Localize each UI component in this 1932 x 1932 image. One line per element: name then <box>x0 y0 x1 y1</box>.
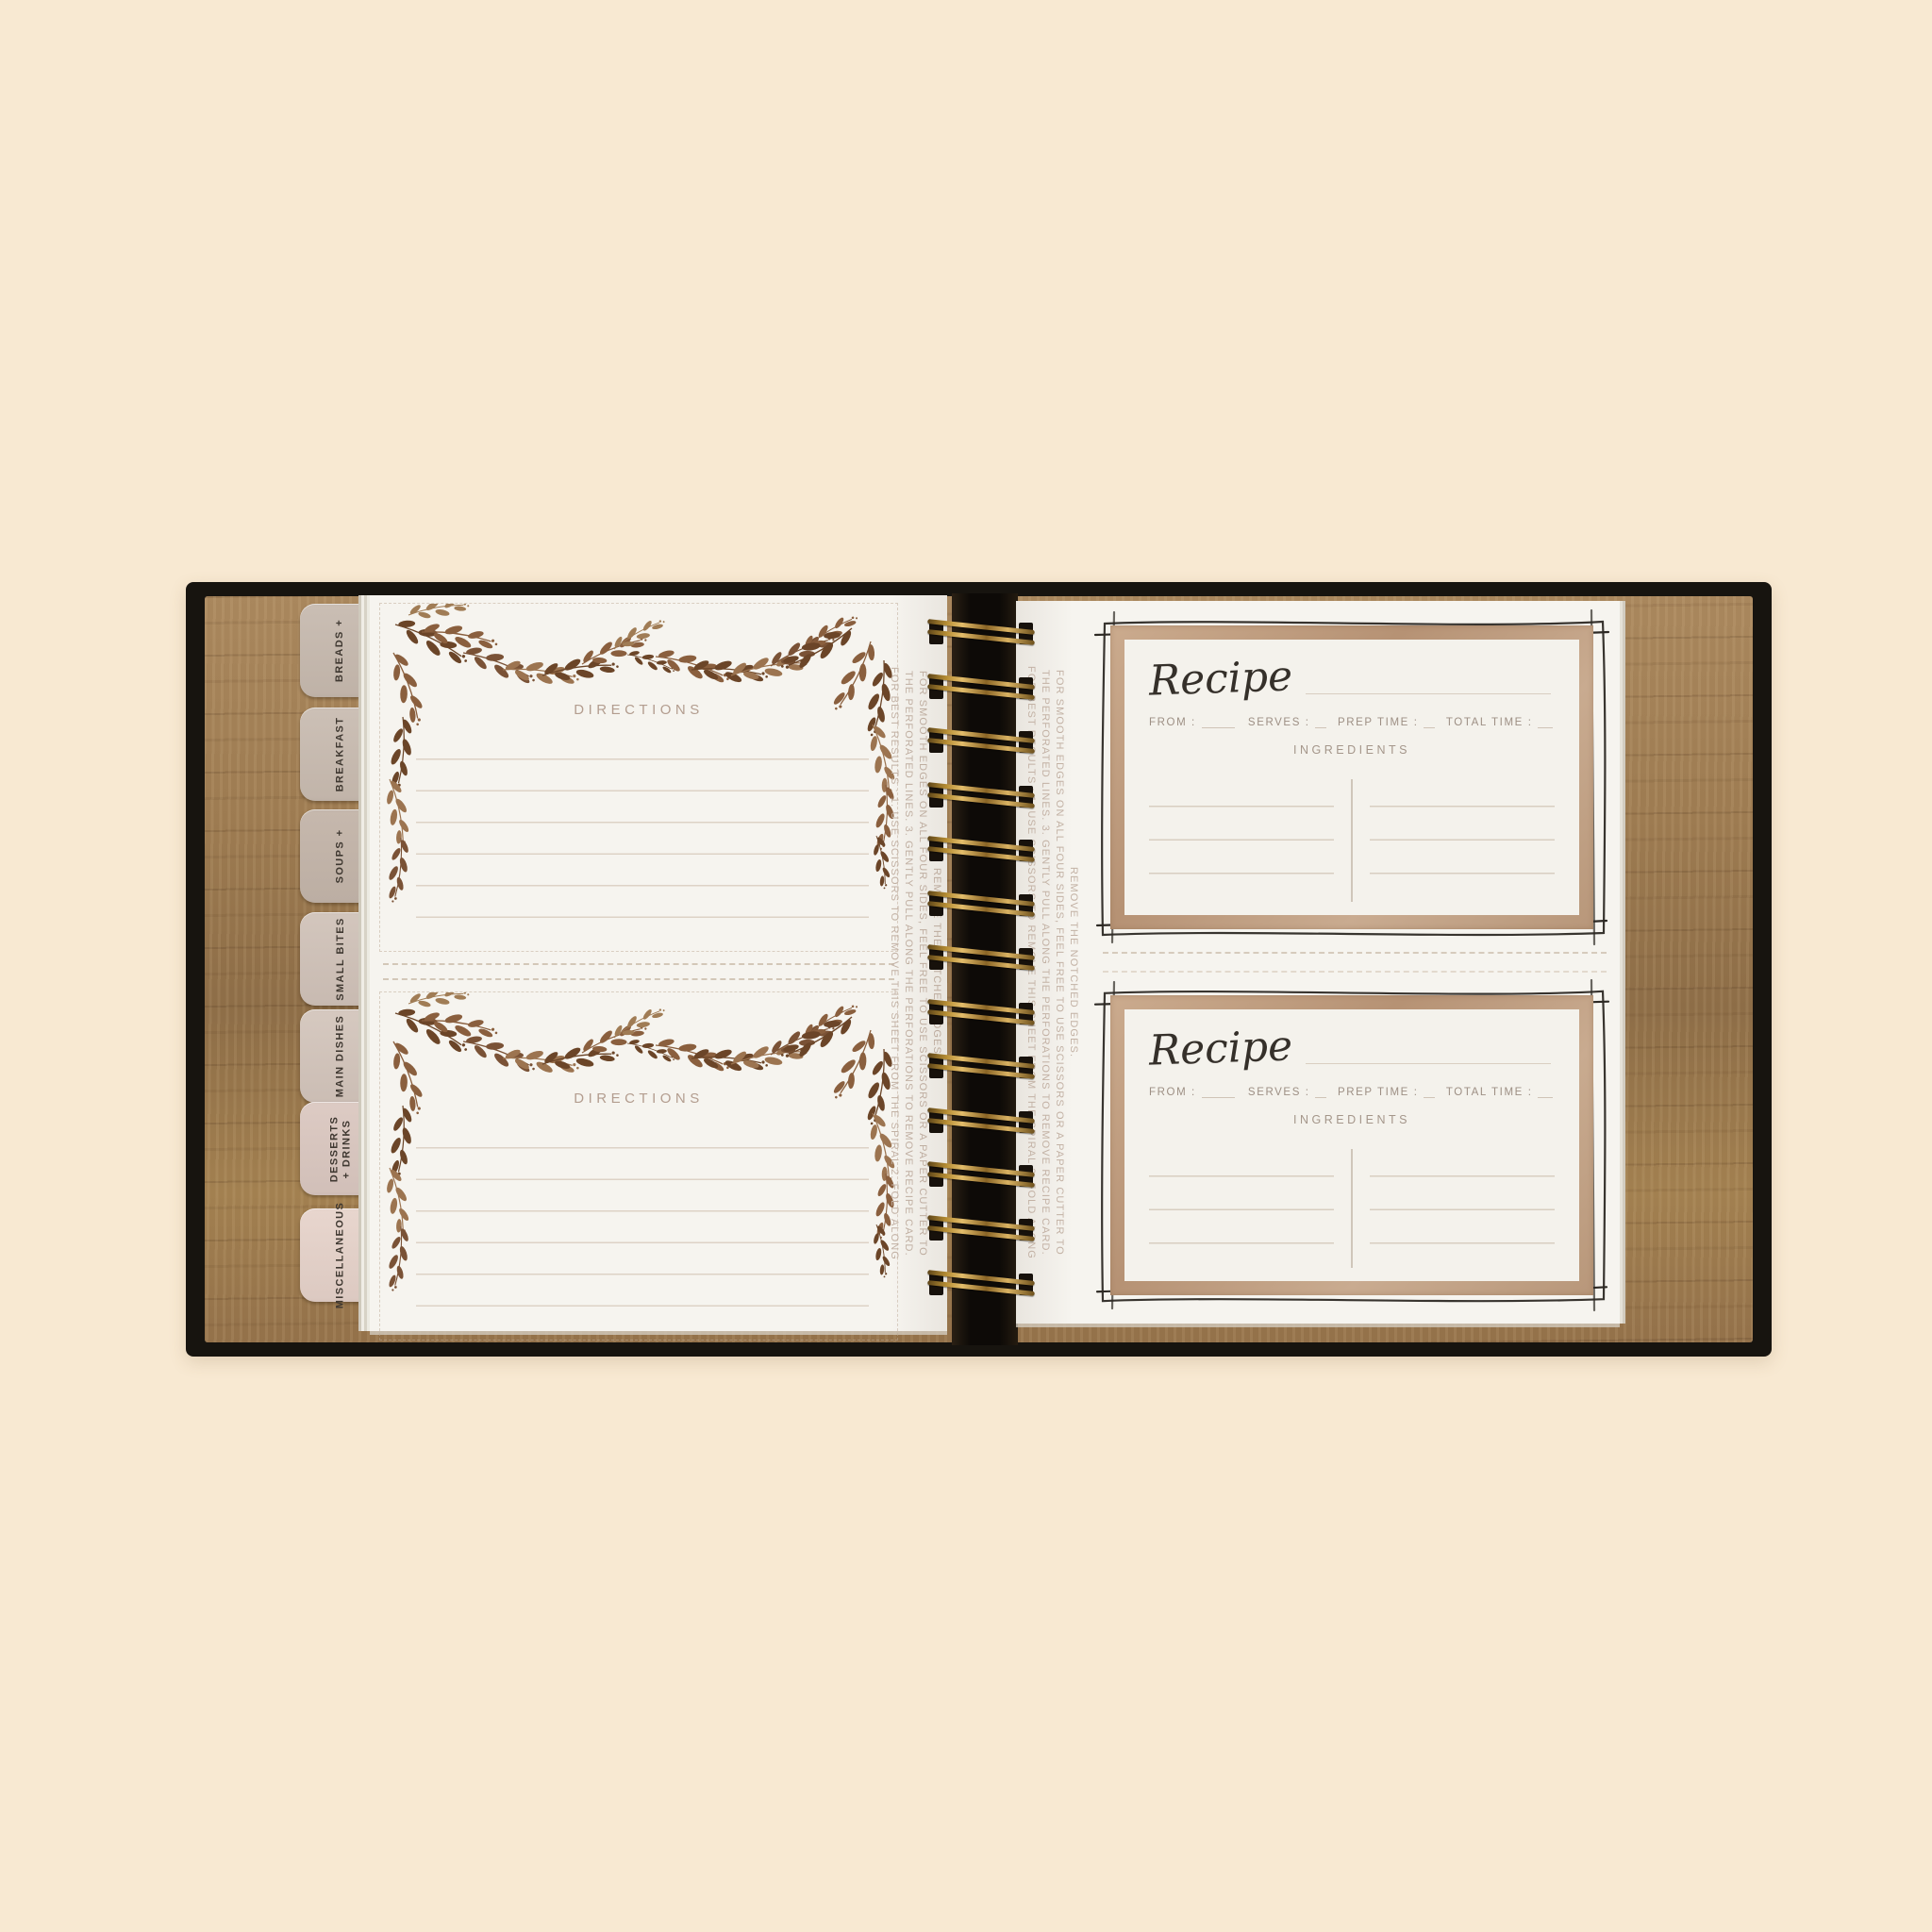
spiral-coil <box>924 837 1039 865</box>
from-writing-line <box>1202 716 1235 728</box>
prep-time-writing-line <box>1424 1086 1435 1098</box>
tab-breakfast-label: BREAKFAST <box>334 717 346 792</box>
directions-heading: DIRECTIONS <box>380 702 897 718</box>
recipe-card-top: Recipe FROM : SERVES : PREP TIME : TOTAL… <box>1110 625 1593 929</box>
spiral-coil <box>924 1216 1039 1244</box>
recipe-book: BREADS + BREAKFAST SOUPS + SMALL BITES M… <box>186 582 1772 1357</box>
spiral-coil <box>924 1162 1039 1191</box>
recipe-fields-row: FROM : SERVES : PREP TIME : TOTAL TIME : <box>1149 711 1555 728</box>
tab-small-bites-label: SMALL BITES <box>335 917 347 1001</box>
ruled-lines <box>1149 1143 1334 1268</box>
instructions-line: THE PERFORATED LINES. 3. GENTLY PULL ALO… <box>901 658 915 1269</box>
ingredients-columns <box>1149 1143 1555 1268</box>
ruled-lines <box>1370 1143 1555 1268</box>
prep-time-label: PREP TIME : <box>1338 1087 1419 1098</box>
instructions-line: FOR SMOOTH EDGES ON ALL FOUR SIDES, FEEL… <box>1052 663 1066 1261</box>
from-label: FROM : <box>1149 1087 1196 1098</box>
serves-label: SERVES : <box>1248 717 1310 728</box>
column-divider <box>1351 1149 1353 1268</box>
recipe-card-body: Recipe FROM : SERVES : PREP TIME : TOTAL… <box>1124 1009 1579 1281</box>
tab-main-dishes-label: MAIN DISHES <box>335 1015 347 1098</box>
serves-writing-line <box>1315 1086 1326 1098</box>
tab-soups-label: SOUPS + <box>334 829 346 884</box>
recipe-card-bottom: Recipe FROM : SERVES : PREP TIME : TOTAL… <box>1110 995 1593 1295</box>
serves-label: SERVES : <box>1248 1087 1310 1098</box>
serves-writing-line <box>1315 716 1326 728</box>
watercolor-frame: Recipe FROM : SERVES : PREP TIME : TOTAL… <box>1110 625 1593 929</box>
botanical-garland-illustration <box>380 604 897 915</box>
total-time-label: TOTAL TIME : <box>1446 1087 1533 1098</box>
prep-time-label: PREP TIME : <box>1338 717 1419 728</box>
watercolor-frame: Recipe FROM : SERVES : PREP TIME : TOTAL… <box>1110 995 1593 1295</box>
from-writing-line <box>1202 1086 1235 1098</box>
perforation-line <box>1103 952 1607 954</box>
spiral-coil <box>924 1271 1039 1299</box>
ingredients-heading: INGREDIENTS <box>1149 1113 1555 1126</box>
botanical-garland-illustration <box>380 992 897 1304</box>
perforation-line <box>383 963 894 965</box>
spiral-coil <box>924 783 1039 811</box>
ingredients-columns <box>1149 774 1555 902</box>
perforation-line <box>1103 971 1607 973</box>
left-page: DIRECTIONS DIRECTIONS FOR BEST RESULTS :… <box>370 595 947 1331</box>
recipe-title: Recipe <box>1148 1025 1293 1072</box>
recipe-fields-row: FROM : SERVES : PREP TIME : TOTAL TIME : <box>1149 1081 1555 1098</box>
total-time-writing-line <box>1538 716 1554 728</box>
ruled-lines <box>1370 774 1555 902</box>
instructions-line: REMOVE THE NOTCHED EDGES. <box>1066 663 1080 1261</box>
spiral-coil <box>924 1108 1039 1137</box>
tab-breads-label: BREADS + <box>334 619 346 682</box>
right-page: FOR BEST RESULTS : 1. USE SCISSORS TO RE… <box>1016 601 1620 1324</box>
tab-miscellaneous-label: MISCELLANEOUS <box>335 1202 347 1309</box>
spiral-coil <box>924 1054 1039 1082</box>
spiral-coil <box>924 1000 1039 1028</box>
prep-time-writing-line <box>1424 716 1435 728</box>
title-writing-line <box>1306 693 1551 694</box>
spiral-coil <box>924 945 1039 974</box>
directions-card-bottom: DIRECTIONS <box>379 991 898 1341</box>
perforation-line <box>383 978 894 980</box>
tab-desserts-drinks-label: DESSERTS + DRINKS <box>328 1115 353 1182</box>
directions-card-top: DIRECTIONS <box>379 603 898 952</box>
spiral-coil <box>924 620 1039 648</box>
recipe-title: Recipe <box>1148 656 1293 702</box>
from-label: FROM : <box>1149 717 1196 728</box>
column-divider <box>1351 779 1353 902</box>
total-time-writing-line <box>1538 1086 1554 1098</box>
recipe-card-body: Recipe FROM : SERVES : PREP TIME : TOTAL… <box>1124 640 1579 915</box>
instructions-line: THE PERFORATED LINES. 3. GENTLY PULL ALO… <box>1038 663 1052 1261</box>
ruled-lines <box>1149 774 1334 902</box>
instructions-line: FOR BEST RESULTS : 1. USE SCISSORS TO RE… <box>887 658 901 1269</box>
total-time-label: TOTAL TIME : <box>1446 717 1533 728</box>
product-photo-scene: BREADS + BREAKFAST SOUPS + SMALL BITES M… <box>0 0 1932 1932</box>
spiral-coil <box>924 728 1039 757</box>
ingredients-heading: INGREDIENTS <box>1149 743 1555 757</box>
spiral-coil <box>924 675 1039 703</box>
title-writing-line <box>1306 1063 1551 1064</box>
spiral-coil <box>924 891 1039 920</box>
directions-heading: DIRECTIONS <box>380 1091 897 1107</box>
